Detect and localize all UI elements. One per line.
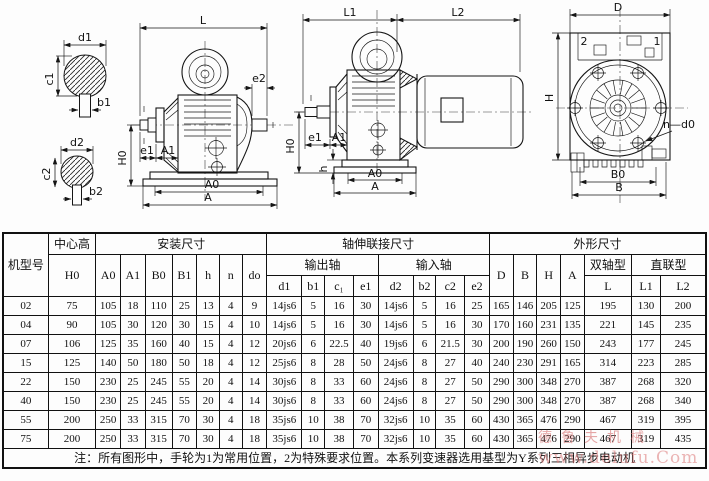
table-cell: 4: [219, 316, 242, 335]
spec-table-head: 机型号 中心高 安装尺寸 轴伸联接尺寸 外形尺寸 H0 A0 A1 B0 B1 …: [3, 233, 706, 297]
col-header-double-shaft: 双轴型: [584, 255, 631, 276]
table-cell: 8: [413, 373, 436, 392]
table-cell: 245: [145, 392, 172, 411]
table-cell: 30: [465, 316, 490, 335]
table-cell: 315: [145, 430, 172, 449]
table-cell: 105: [96, 316, 121, 335]
table-cell: 14js6: [267, 316, 302, 335]
table-row: 0710612535160401541220js6622.54019js6621…: [3, 335, 706, 354]
table-cell: 4: [219, 430, 242, 449]
table-cell: 145: [632, 316, 661, 335]
table-cell: 22.5: [325, 335, 354, 354]
drawing-side-view: L e2: [116, 14, 296, 209]
table-cell: 300: [513, 373, 537, 392]
dim-label-H: H: [543, 94, 556, 102]
table-cell: 290: [489, 373, 513, 392]
table-cell: 13: [197, 297, 220, 316]
table-cell: 230: [96, 373, 121, 392]
table-cell: 10: [302, 411, 325, 430]
table-cell: 15: [3, 354, 48, 373]
table-cell: 200: [489, 335, 513, 354]
table-cell: 12: [242, 354, 267, 373]
table-note: 注：所有图形中，手轮为1为常用位置，2为特殊要求位置。本系列变速器选用基型为Y系…: [3, 449, 706, 469]
dim-label-A1-side: A1: [161, 144, 176, 157]
table-cell: 20js6: [267, 335, 302, 354]
table-cell: 14: [242, 373, 267, 392]
spec-table-body: 02751051811025134914js65163014js65162516…: [3, 297, 706, 449]
col-header-h: h: [197, 255, 220, 297]
table-cell: 9: [242, 297, 267, 316]
table-cell: 245: [145, 373, 172, 392]
col-header-install: 安装尺寸: [96, 233, 267, 255]
table-cell: 319: [632, 430, 661, 449]
table-cell: 240: [489, 354, 513, 373]
table-cell: 260: [537, 335, 561, 354]
col-header-b1: b1: [302, 276, 325, 297]
technical-drawings: d1 c1 b1 d2 c2 b2: [0, 0, 709, 228]
table-cell: 75: [3, 430, 48, 449]
table-cell: 348: [537, 392, 561, 411]
catalog-page: d1 c1 b1 d2 c2 b2: [0, 0, 709, 481]
col-header-B: B: [513, 255, 537, 297]
table-row: 4015023025245552041430js68336024js682750…: [3, 392, 706, 411]
table-cell: 435: [660, 430, 706, 449]
table-cell: 55: [3, 411, 48, 430]
dim-label-n-d0: n—d0: [663, 118, 695, 131]
table-cell: 55: [172, 373, 197, 392]
col-header-A0: A0: [96, 255, 121, 297]
table-cell: 30: [172, 316, 197, 335]
table-cell: 27: [436, 392, 465, 411]
table-cell: 290: [489, 392, 513, 411]
col-header-shaft: 轴伸联接尺寸: [267, 233, 490, 255]
dim-label-H0-motor: H0: [284, 138, 297, 153]
table-cell: 314: [584, 354, 631, 373]
table-cell: 319: [632, 411, 661, 430]
table-cell: 50: [465, 392, 490, 411]
table-cell: 125: [48, 354, 95, 373]
table-cell: 285: [660, 354, 706, 373]
table-cell: 130: [632, 297, 661, 316]
table-cell: 35: [436, 430, 465, 449]
table-cell: 18: [120, 297, 145, 316]
table-cell: 40: [353, 335, 378, 354]
table-cell: 205: [537, 297, 561, 316]
table-cell: 4: [219, 411, 242, 430]
col-header-L: L: [584, 276, 631, 297]
table-cell: 40: [465, 354, 490, 373]
table-cell: 24js6: [378, 373, 413, 392]
table-cell: 70: [353, 411, 378, 430]
col-header-direct: 直联型: [632, 255, 706, 276]
table-cell: 70: [353, 430, 378, 449]
dim-label-h: h: [317, 165, 330, 172]
table-cell: 16: [436, 316, 465, 335]
table-cell: 180: [145, 354, 172, 373]
table-cell: 5: [413, 297, 436, 316]
table-cell: 268: [632, 392, 661, 411]
table-cell: 33: [325, 392, 354, 411]
table-cell: 30: [197, 430, 220, 449]
table-cell: 70: [172, 430, 197, 449]
dim-label-b2: b2: [89, 185, 103, 198]
table-cell: 476: [537, 411, 561, 430]
col-header-input-shaft: 输入轴: [378, 255, 489, 276]
table-cell: 18: [197, 354, 220, 373]
table-cell: 30js6: [267, 373, 302, 392]
table-cell: 4: [219, 392, 242, 411]
col-header-D: D: [489, 255, 513, 297]
table-row: 1512514050180501841225js68285024js682740…: [3, 354, 706, 373]
table-cell: 12: [242, 335, 267, 354]
handwheel-pos-1-label: 1: [654, 35, 661, 48]
col-header-B0: B0: [145, 255, 172, 297]
table-cell: 291: [537, 354, 561, 373]
dim-label-A1-motor: A1: [332, 131, 347, 144]
table-cell: 32js6: [378, 430, 413, 449]
col-header-model: 机型号: [3, 233, 48, 297]
col-header-H0: H0: [48, 255, 95, 297]
table-cell: 235: [660, 316, 706, 335]
table-cell: 170: [489, 316, 513, 335]
col-header-outline: 外形尺寸: [489, 233, 706, 255]
dim-label-L1: L1: [343, 6, 356, 19]
table-cell: 04: [3, 316, 48, 335]
table-cell: 340: [660, 392, 706, 411]
table-cell: 30js6: [267, 392, 302, 411]
table-cell: 70: [172, 411, 197, 430]
col-header-center-height: 中心高: [48, 233, 95, 255]
table-cell: 30: [120, 316, 145, 335]
table-row: 5520025033315703041835js610387032js61035…: [3, 411, 706, 430]
table-cell: 75: [48, 297, 95, 316]
table-cell: 32js6: [378, 411, 413, 430]
table-cell: 200: [48, 411, 95, 430]
table-cell: 27: [436, 373, 465, 392]
table-cell: 50: [353, 354, 378, 373]
table-cell: 33: [120, 430, 145, 449]
table-cell: 200: [660, 297, 706, 316]
table-cell: 320: [660, 373, 706, 392]
table-cell: 476: [537, 430, 561, 449]
table-row: 02751051811025134914js65163014js65162516…: [3, 297, 706, 316]
col-header-A1: A1: [120, 255, 145, 297]
table-cell: 38: [325, 411, 354, 430]
table-cell: 430: [489, 411, 513, 430]
table-cell: 50: [120, 354, 145, 373]
table-cell: 14js6: [378, 297, 413, 316]
dim-label-e1-motor: e1: [308, 131, 322, 144]
table-cell: 160: [145, 335, 172, 354]
table-cell: 300: [513, 392, 537, 411]
dim-label-A: A: [204, 191, 212, 204]
table-cell: 33: [325, 373, 354, 392]
col-header-output-shaft: 输出轴: [267, 255, 378, 276]
table-cell: 150: [561, 335, 585, 354]
table-cell: 230: [96, 392, 121, 411]
col-header-L2: L2: [660, 276, 706, 297]
table-cell: 30: [465, 335, 490, 354]
dim-label-d1: d1: [78, 31, 92, 44]
table-cell: 8: [302, 373, 325, 392]
table-cell: 5: [302, 297, 325, 316]
table-cell: 106: [48, 335, 95, 354]
dim-label-H0-side: H0: [116, 150, 129, 165]
table-cell: 33: [120, 411, 145, 430]
shaft-section-input: d2 c2 b2: [40, 136, 103, 205]
table-cell: 165: [489, 297, 513, 316]
table-cell: 250: [96, 411, 121, 430]
col-header-e2: e2: [465, 276, 490, 297]
table-cell: 60: [353, 392, 378, 411]
table-cell: 35: [436, 411, 465, 430]
table-cell: 27: [436, 354, 465, 373]
table-cell: 25: [465, 297, 490, 316]
table-cell: 348: [537, 373, 561, 392]
dim-label-c1: c1: [43, 72, 56, 85]
table-cell: 35js6: [267, 411, 302, 430]
table-cell: 60: [465, 430, 490, 449]
dim-label-A-motor: A: [371, 180, 379, 193]
shaft-section-output: d1 c1 b1: [43, 31, 111, 117]
dim-label-d2: d2: [70, 136, 84, 149]
dim-label-e2: e2: [252, 72, 266, 85]
table-cell: 195: [584, 297, 631, 316]
table-cell: 270: [561, 392, 585, 411]
table-cell: 10: [242, 316, 267, 335]
table-cell: 125: [561, 297, 585, 316]
table-cell: 4: [219, 373, 242, 392]
table-cell: 4: [219, 335, 242, 354]
table-cell: 50: [465, 373, 490, 392]
table-cell: 60: [353, 373, 378, 392]
table-cell: 22: [3, 373, 48, 392]
table-cell: 365: [513, 430, 537, 449]
table-row: 049010530120301541014js65163014js6516301…: [3, 316, 706, 335]
table-cell: 02: [3, 297, 48, 316]
table-cell: 16: [325, 297, 354, 316]
table-cell: 25: [172, 297, 197, 316]
table-cell: 10: [413, 430, 436, 449]
table-cell: 4: [219, 297, 242, 316]
dim-label-D: D: [614, 1, 622, 14]
table-cell: 30: [353, 297, 378, 316]
col-header-b2: b2: [413, 276, 436, 297]
col-header-H: H: [537, 255, 561, 297]
table-cell: 40: [3, 392, 48, 411]
table-cell: 4: [219, 354, 242, 373]
drawing-motor-view: L1 L2: [284, 6, 533, 197]
table-cell: 8: [302, 354, 325, 373]
table-cell: 30: [197, 411, 220, 430]
table-cell: 125: [96, 335, 121, 354]
table-cell: 60: [465, 411, 490, 430]
table-cell: 35js6: [267, 430, 302, 449]
table-cell: 14js6: [378, 316, 413, 335]
table-cell: 8: [413, 392, 436, 411]
table-cell: 387: [584, 392, 631, 411]
table-cell: 16: [436, 297, 465, 316]
col-header-n: n: [219, 255, 242, 297]
table-cell: 18: [242, 411, 267, 430]
dim-label-A0: A0: [205, 178, 220, 191]
table-cell: 365: [513, 411, 537, 430]
dim-label-e1-side: e1: [140, 144, 154, 157]
table-cell: 190: [513, 335, 537, 354]
table-cell: 6: [302, 335, 325, 354]
table-cell: 20: [197, 392, 220, 411]
dim-label-c2: c2: [40, 167, 53, 180]
dim-label-b1: b1: [97, 96, 111, 109]
table-cell: 55: [172, 392, 197, 411]
table-cell: 430: [489, 430, 513, 449]
table-cell: 250: [96, 430, 121, 449]
table-cell: 140: [96, 354, 121, 373]
col-header-B1: B1: [172, 255, 197, 297]
table-cell: 177: [632, 335, 661, 354]
table-cell: 10: [302, 430, 325, 449]
table-row: 2215023025245552041430js68336024js682750…: [3, 373, 706, 392]
table-cell: 25js6: [267, 354, 302, 373]
table-cell: 268: [632, 373, 661, 392]
table-cell: 231: [537, 316, 561, 335]
col-header-c2: c2: [436, 276, 465, 297]
table-cell: 30: [353, 316, 378, 335]
table-cell: 160: [513, 316, 537, 335]
table-cell: 15: [197, 335, 220, 354]
table-cell: 14: [242, 392, 267, 411]
dim-label-L: L: [200, 14, 207, 27]
table-cell: 290: [561, 411, 585, 430]
table-cell: 24js6: [378, 392, 413, 411]
col-header-e1: e1: [353, 276, 378, 297]
table-cell: 120: [145, 316, 172, 335]
dim-label-B0: B0: [611, 168, 626, 181]
table-cell: 135: [561, 316, 585, 335]
table-cell: 245: [660, 335, 706, 354]
table-cell: 8: [302, 392, 325, 411]
col-header-A: A: [561, 255, 585, 297]
col-header-d1: d1: [267, 276, 302, 297]
table-cell: 105: [96, 297, 121, 316]
dim-label-B: B: [615, 181, 623, 194]
table-cell: 24js6: [378, 354, 413, 373]
table-cell: 28: [325, 354, 354, 373]
table-cell: 14js6: [267, 297, 302, 316]
table-cell: 10: [413, 411, 436, 430]
table-cell: 19js6: [378, 335, 413, 354]
table-cell: 20: [197, 373, 220, 392]
table-cell: 18: [242, 430, 267, 449]
table-cell: 35: [120, 335, 145, 354]
table-cell: 50: [172, 354, 197, 373]
table-cell: 290: [561, 430, 585, 449]
table-cell: 200: [48, 430, 95, 449]
table-row: 7520025033315703041835js610387032js61035…: [3, 430, 706, 449]
dim-label-A0-motor: A0: [368, 167, 383, 180]
table-cell: 387: [584, 373, 631, 392]
table-cell: 25: [120, 392, 145, 411]
col-header-L1: L1: [632, 276, 661, 297]
handwheel-pos-2-label: 2: [581, 35, 588, 48]
table-cell: 270: [561, 373, 585, 392]
table-cell: 223: [632, 354, 661, 373]
table-cell: 315: [145, 411, 172, 430]
table-cell: 38: [325, 430, 354, 449]
table-cell: 90: [48, 316, 95, 335]
spec-table: 机型号 中心高 安装尺寸 轴伸联接尺寸 外形尺寸 H0 A0 A1 B0 B1 …: [2, 232, 707, 469]
table-cell: 25: [120, 373, 145, 392]
col-header-do: do: [242, 255, 267, 297]
table-cell: 146: [513, 297, 537, 316]
table-cell: 395: [660, 411, 706, 430]
table-cell: 230: [513, 354, 537, 373]
dim-label-L2: L2: [451, 6, 464, 19]
table-cell: 07: [3, 335, 48, 354]
table-cell: 467: [584, 411, 631, 430]
table-cell: 40: [172, 335, 197, 354]
table-cell: 16: [325, 316, 354, 335]
table-cell: 5: [413, 316, 436, 335]
col-header-d2: d2: [378, 276, 413, 297]
table-cell: 110: [145, 297, 172, 316]
table-cell: 8: [413, 354, 436, 373]
table-cell: 150: [48, 392, 95, 411]
table-cell: 6: [413, 335, 436, 354]
table-cell: 221: [584, 316, 631, 335]
table-cell: 5: [302, 316, 325, 335]
col-header-c1: c₁: [325, 276, 354, 297]
table-cell: 15: [197, 316, 220, 335]
drawing-front-view: D 2 1 n—d0: [543, 1, 695, 203]
table-cell: 243: [584, 335, 631, 354]
table-cell: 165: [561, 354, 585, 373]
table-cell: 467: [584, 430, 631, 449]
table-cell: 150: [48, 373, 95, 392]
table-cell: 21.5: [436, 335, 465, 354]
